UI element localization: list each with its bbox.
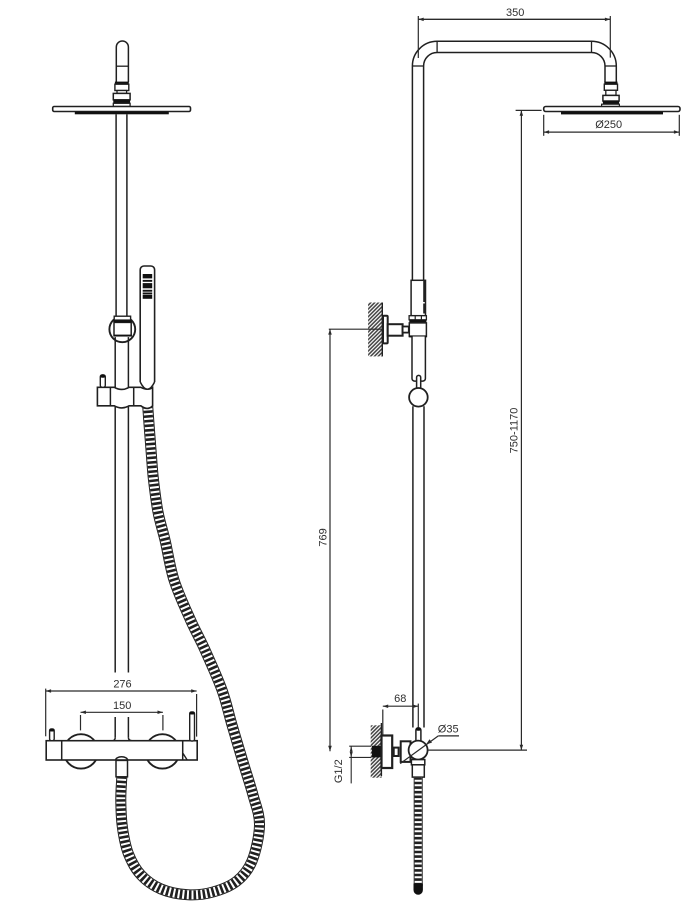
svg-text:276: 276 xyxy=(113,679,131,691)
svg-text:Ø250: Ø250 xyxy=(595,119,622,131)
svg-text:Ø35: Ø35 xyxy=(438,723,459,735)
svg-text:68: 68 xyxy=(394,693,406,705)
svg-text:350: 350 xyxy=(506,7,524,19)
svg-text:750-1170: 750-1170 xyxy=(508,408,520,454)
svg-text:769: 769 xyxy=(318,528,330,546)
svg-text:150: 150 xyxy=(113,700,131,712)
svg-text:G1/2: G1/2 xyxy=(333,759,345,783)
